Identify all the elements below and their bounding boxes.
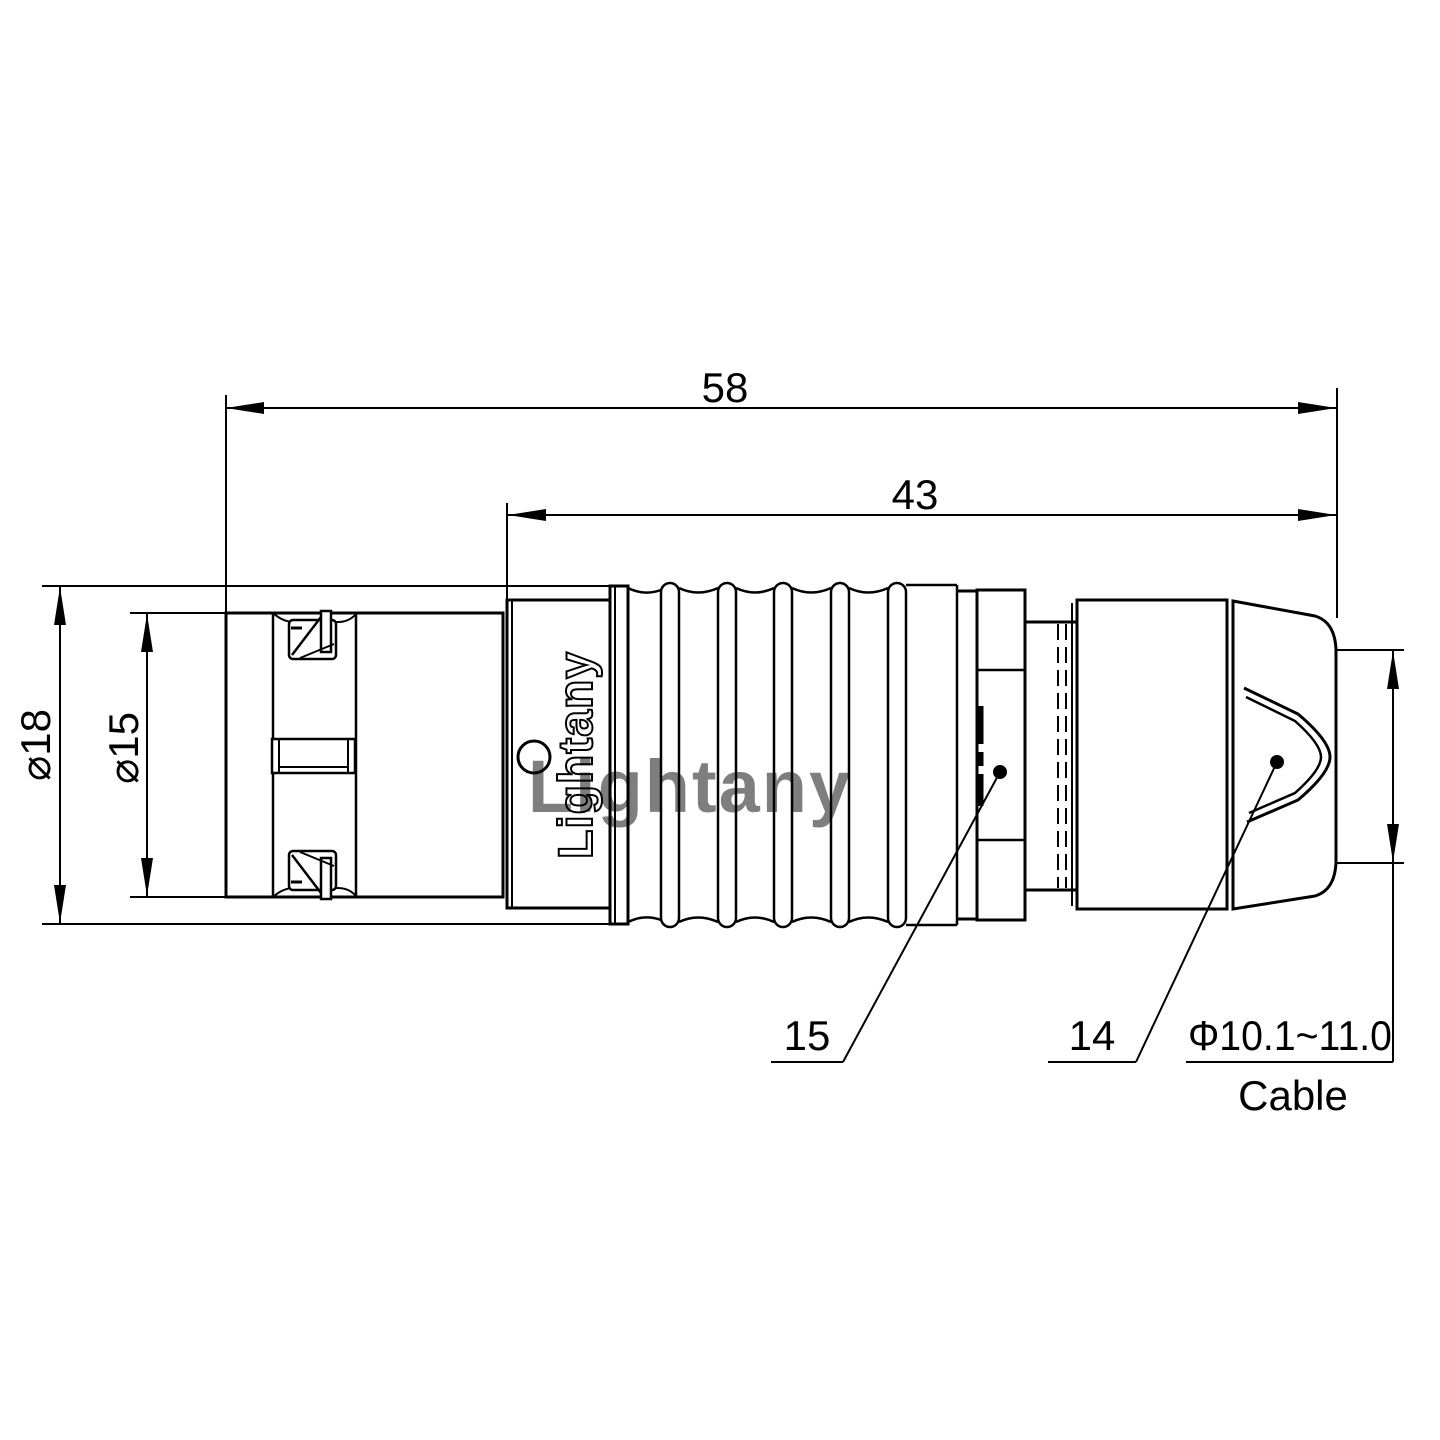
arrow-top: [1387, 651, 1399, 689]
collar-outline: [977, 590, 1025, 920]
backshell-block: [1077, 600, 1227, 909]
item-14-label: 14: [1069, 1012, 1116, 1059]
front-sleeve-outline: [226, 613, 503, 897]
arrow-bottom: [141, 858, 153, 896]
dim-front-diameter: ⌀15: [100, 613, 226, 897]
arrow-left: [508, 509, 546, 521]
arrow-bottom: [1387, 824, 1399, 862]
arrow-top: [141, 614, 153, 652]
backshell-neck: [1025, 622, 1077, 890]
arrow-right: [1298, 402, 1336, 414]
dim-body-length: 43: [507, 471, 1336, 600]
watermark: Lightany: [528, 745, 852, 828]
rib-5: [888, 583, 906, 927]
dim-value-43: 43: [892, 471, 939, 518]
dim-value-58: 58: [702, 364, 749, 411]
item-15-label: 15: [784, 1012, 831, 1059]
backshell-body: [1072, 600, 1336, 909]
connector-drawing: Lightany Lightan: [0, 0, 1440, 1440]
dim-overall-length: 58: [226, 364, 1337, 618]
dim-value-18: ⌀18: [12, 709, 59, 781]
arrow-bottom: [54, 885, 66, 923]
arrow-top: [54, 587, 66, 625]
cable-dia-value: Φ10.1~11.0: [1188, 1012, 1392, 1059]
cable-label: Cable: [1238, 1072, 1348, 1119]
key-slot-window: [272, 739, 355, 773]
front-sleeve: [226, 613, 503, 897]
arrow-right: [1298, 509, 1336, 521]
arrow-left: [226, 402, 264, 414]
technical-drawing-canvas: Lightany Lightan: [0, 0, 1440, 1440]
coupling-collar: [977, 590, 1025, 920]
dim-value-15: ⌀15: [100, 712, 147, 784]
